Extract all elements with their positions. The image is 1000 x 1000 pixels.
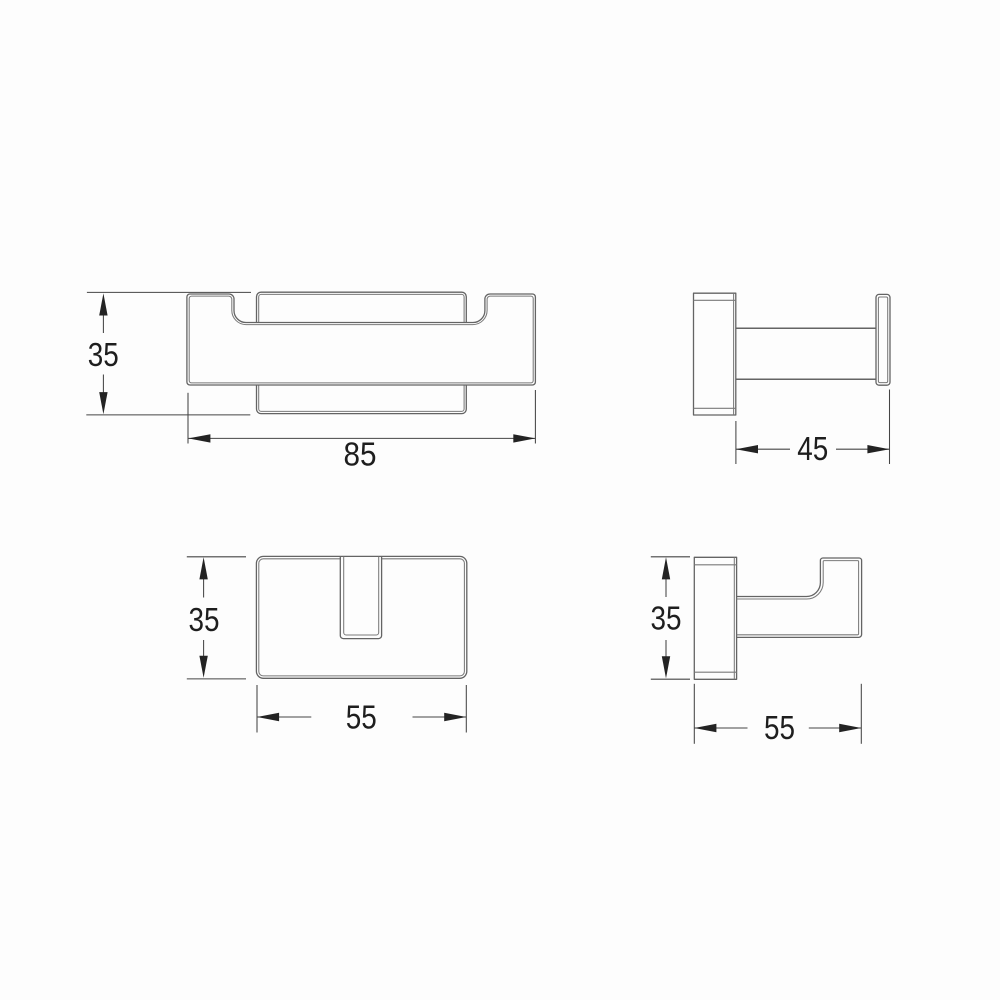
- svg-text:35: 35: [189, 602, 220, 639]
- svg-text:85: 85: [344, 436, 377, 473]
- svg-text:55: 55: [764, 710, 795, 747]
- svg-text:45: 45: [797, 431, 828, 468]
- svg-text:35: 35: [88, 337, 119, 374]
- svg-text:35: 35: [651, 601, 682, 638]
- svg-text:55: 55: [346, 700, 377, 737]
